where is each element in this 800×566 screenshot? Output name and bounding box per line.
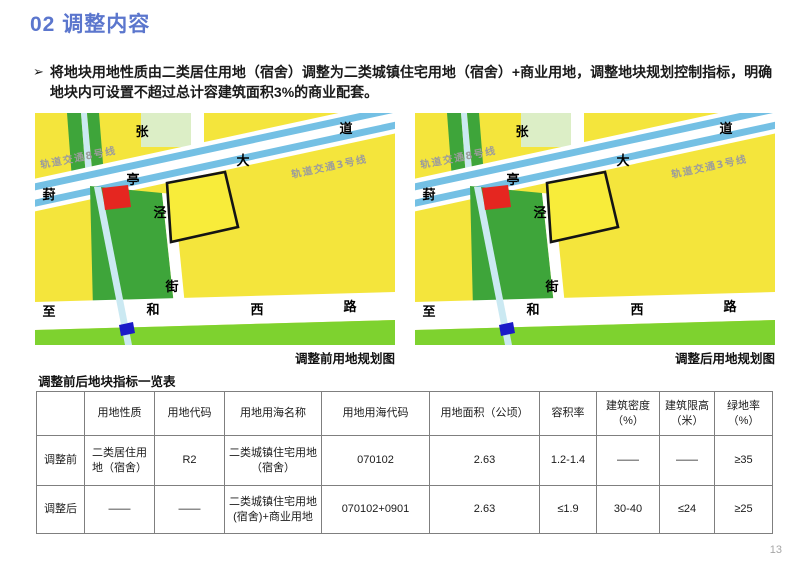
street-char: 西: [250, 303, 263, 318]
red-parcel: [102, 185, 131, 210]
table-cell: 30-40: [597, 486, 660, 534]
header-cell: 绿地率（%）: [715, 392, 773, 436]
header-cell: 用地用海代码: [322, 392, 430, 436]
header-cell: 容积率: [540, 392, 597, 436]
table-cell: ——: [597, 436, 660, 486]
table-cell: ——: [155, 486, 225, 534]
street-char: 亭: [506, 172, 519, 188]
table-cell: 二类城镇住宅用地（宿舍）: [225, 436, 322, 486]
land-use-map-after: 轨道交通8号线 轨道交通3号线 张 道 大 亭 葑 泾 街 至 和 西 路: [415, 113, 775, 345]
table-row-before: 调整前 二类居住用地（宿舍） R2 二类城镇住宅用地（宿舍） 070102 2.…: [37, 436, 773, 486]
street-char: 至: [422, 305, 435, 320]
street-char: 张: [515, 125, 529, 140]
table-cell: ≤24: [660, 486, 715, 534]
table-cell: 1.2-1.4: [540, 436, 597, 486]
map-after: 轨道交通8号线 轨道交通3号线 张 道 大 亭 葑 泾 街 至 和 西 路 调整…: [415, 113, 775, 367]
map-after-caption: 调整后用地规划图: [415, 348, 775, 367]
street-char: 葑: [42, 187, 55, 203]
table-cell: ≥25: [715, 486, 773, 534]
street-char: 葑: [422, 187, 435, 203]
street-char: 大: [616, 153, 629, 169]
table-row-after: 调整后 —— —— 二类城镇住宅用地(宿舍)+商业用地 070102+0901 …: [37, 486, 773, 534]
street-char: 至: [42, 305, 55, 320]
street-char: 街: [544, 279, 558, 295]
table-cell: 二类居住用地（宿舍）: [85, 436, 155, 486]
bullet-paragraph: ➢ 将地块用地性质由二类居住用地（宿舍）调整为二类城镇住宅用地（宿舍）+商业用地…: [33, 62, 773, 103]
row-label: 调整后: [37, 486, 85, 534]
table-cell: 2.63: [430, 436, 540, 486]
bullet-text: 将地块用地性质由二类居住用地（宿舍）调整为二类城镇住宅用地（宿舍）+商业用地，调…: [50, 62, 773, 103]
map-pale-green-block: [141, 113, 195, 147]
table-cell: R2: [155, 436, 225, 486]
header-cell: 建筑密度（%）: [597, 392, 660, 436]
bullet-arrow-icon: ➢: [33, 62, 44, 103]
street-char: 泾: [533, 206, 546, 221]
header-cell: [37, 392, 85, 436]
red-parcel: [482, 185, 511, 210]
street-char: 和: [526, 302, 539, 318]
street-char: 和: [146, 302, 159, 318]
row-label: 调整前: [37, 436, 85, 486]
header-cell: 用地代码: [155, 392, 225, 436]
page-title: 02 调整内容: [30, 8, 150, 38]
header-cell: 用地用海名称: [225, 392, 322, 436]
header-cell: 建筑限高（米）: [660, 392, 715, 436]
street-char: 大: [236, 153, 249, 169]
table-header-row: 用地性质 用地代码 用地用海名称 用地用海代码 用地面积（公顷） 容积率 建筑密…: [37, 392, 773, 436]
table-cell: ≥35: [715, 436, 773, 486]
street-char: 道: [719, 121, 732, 137]
table-cell: ——: [85, 486, 155, 534]
table-cell: 070102+0901: [322, 486, 430, 534]
table-cell: ——: [660, 436, 715, 486]
indicators-table: 用地性质 用地代码 用地用海名称 用地用海代码 用地面积（公顷） 容积率 建筑密…: [36, 391, 773, 534]
table-cell: 2.63: [430, 486, 540, 534]
header-cell: 用地面积（公顷）: [430, 392, 540, 436]
header-cell: 用地性质: [85, 392, 155, 436]
table-cell: ≤1.9: [540, 486, 597, 534]
page-number: 13: [770, 544, 782, 556]
street-char: 西: [630, 303, 643, 318]
street-char: 亭: [126, 172, 139, 188]
street-char: 道: [339, 121, 352, 137]
table-cell: 二类城镇住宅用地(宿舍)+商业用地: [225, 486, 322, 534]
map-before-caption: 调整前用地规划图: [35, 348, 395, 367]
street-char: 路: [723, 299, 737, 315]
slide: 02 调整内容 ➢ 将地块用地性质由二类居住用地（宿舍）调整为二类城镇住宅用地（…: [0, 0, 800, 566]
street-char: 泾: [153, 206, 166, 221]
land-use-map-before: 轨道交通8号线 轨道交通3号线 张 道 大 亭 葑 泾 街 至 和 西 路: [35, 113, 395, 345]
street-char: 张: [135, 125, 149, 140]
map-before: 轨道交通8号线 轨道交通3号线 张 道 大 亭 葑 泾 街 至 和 西 路 调整…: [35, 113, 395, 367]
street-char: 街: [164, 279, 178, 295]
table-title: 调整前后地块指标一览表: [38, 371, 176, 390]
table-cell: 070102: [322, 436, 430, 486]
street-char: 路: [343, 299, 357, 315]
map-pale-green-block: [521, 113, 575, 147]
